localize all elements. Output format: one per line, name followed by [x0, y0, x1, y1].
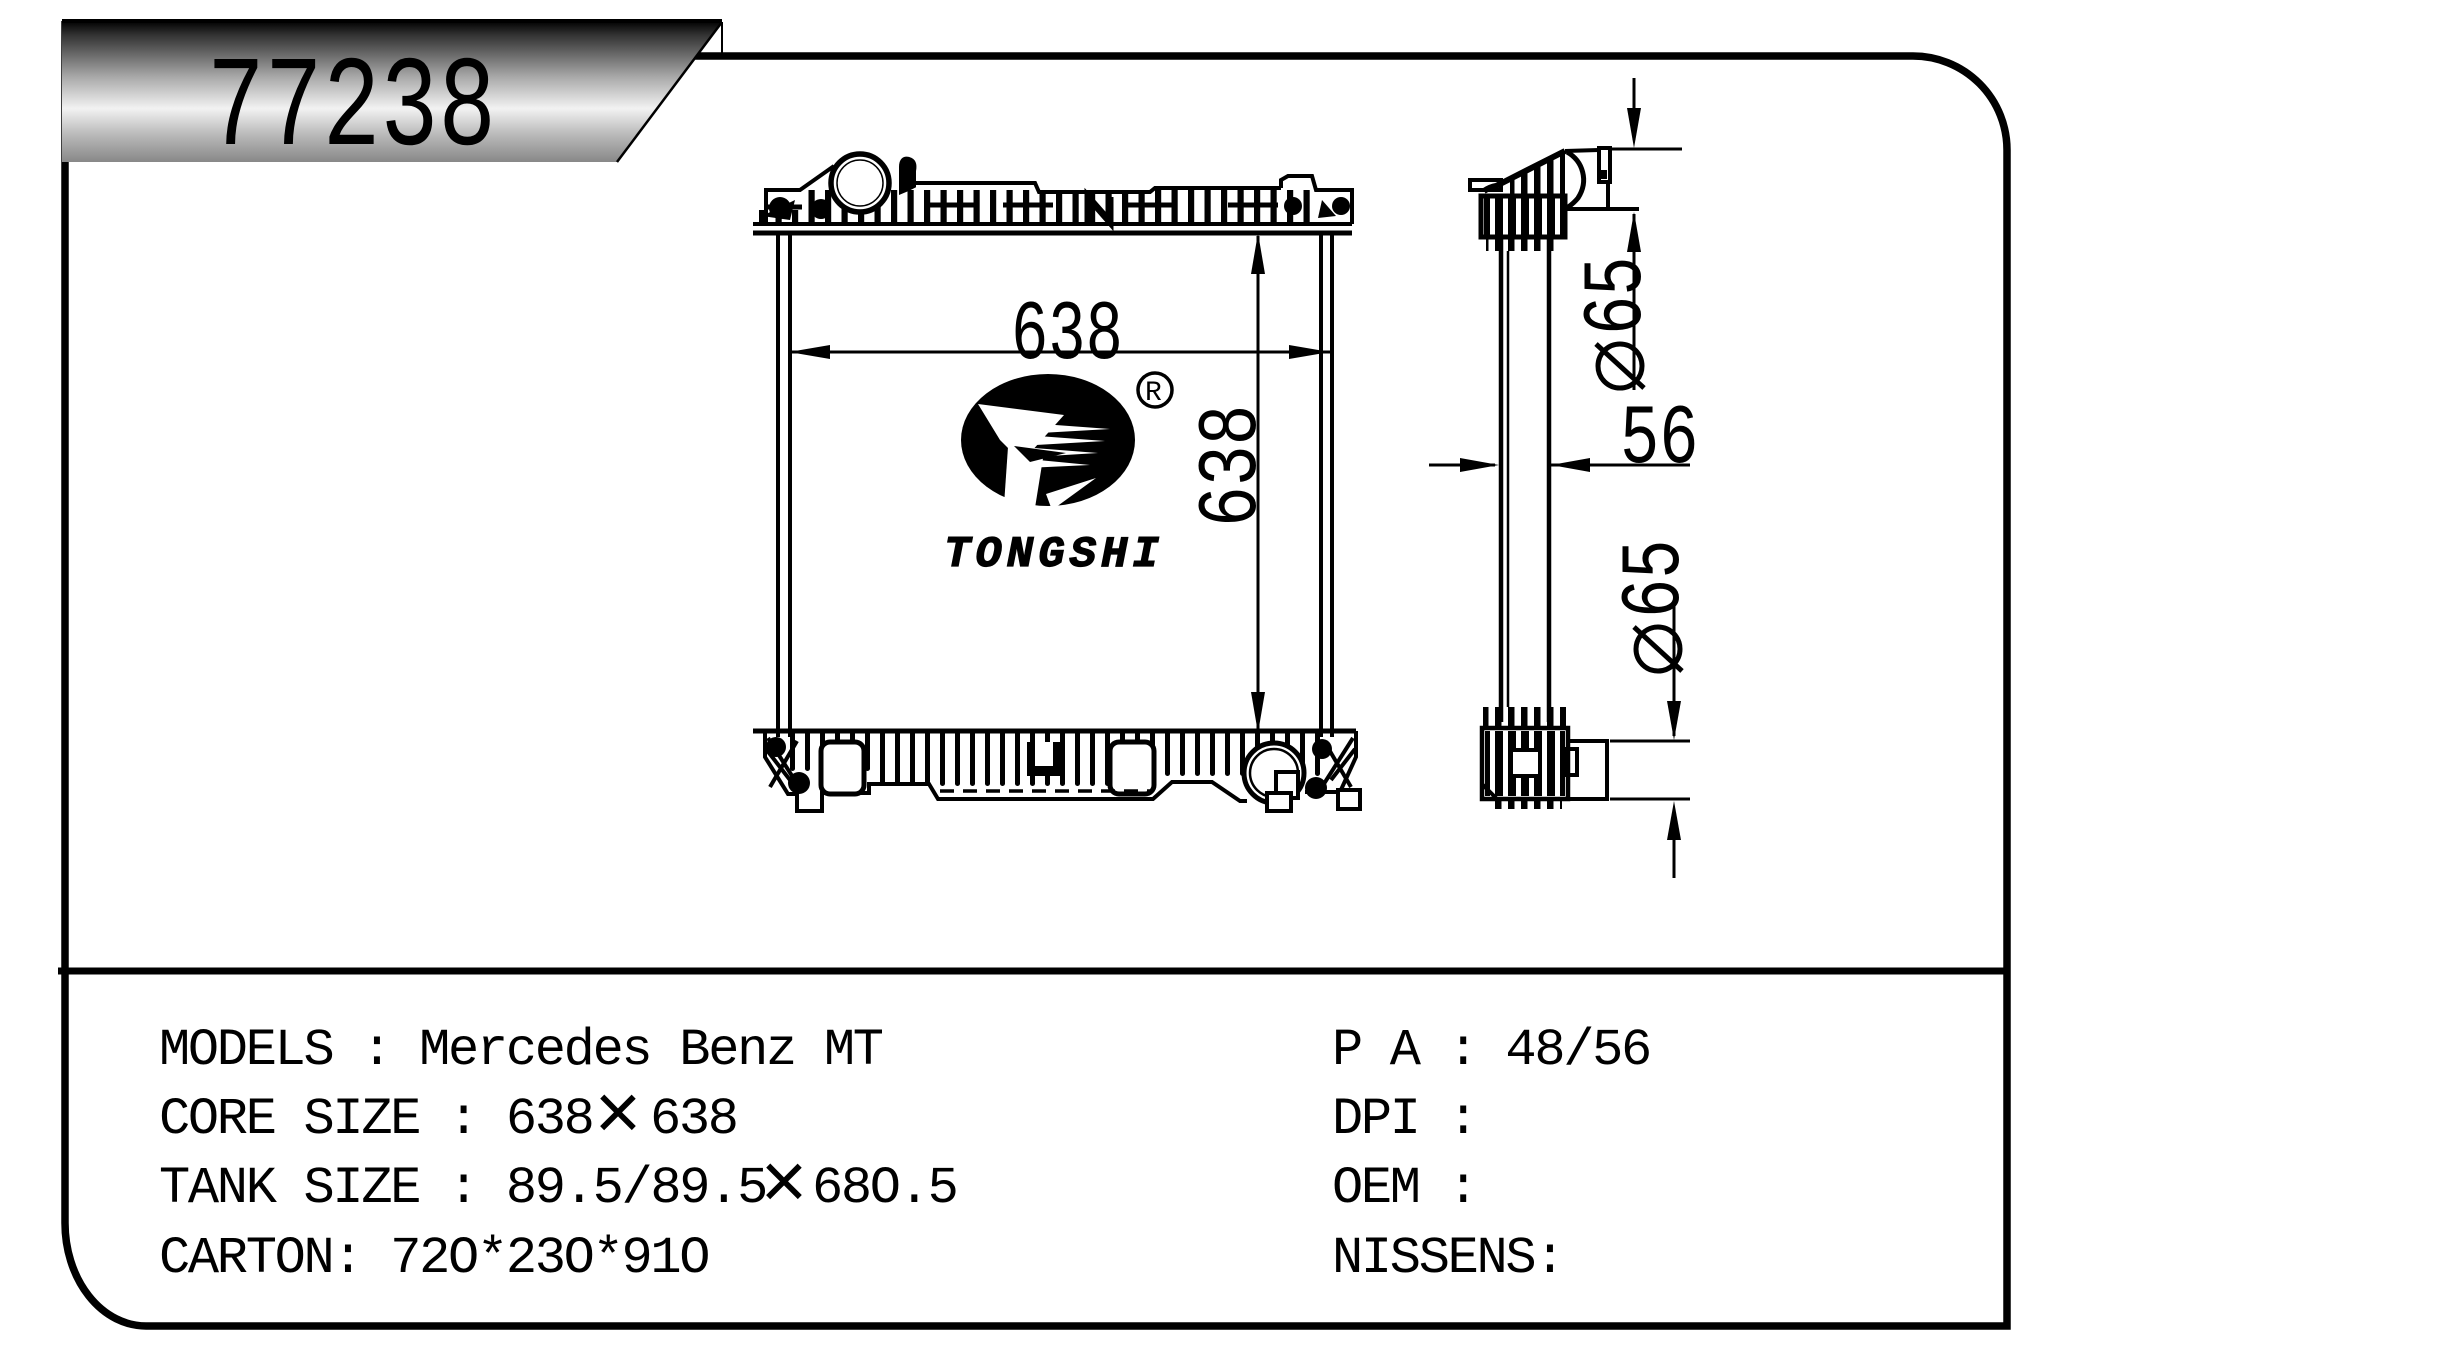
svg-text:638: 638	[1011, 289, 1123, 384]
svg-text:CARTON: 72O*23O*91O: CARTON: 72O*23O*91O	[159, 1229, 708, 1288]
svg-text:638: 638	[1185, 405, 1281, 527]
svg-text:×: ×	[760, 1142, 808, 1233]
svg-text:×: ×	[594, 1073, 642, 1164]
svg-text:R: R	[1145, 378, 1162, 409]
svg-text:CORE SIZE : 638: CORE SIZE : 638	[159, 1090, 593, 1149]
svg-text:DPI :: DPI :	[1332, 1090, 1477, 1149]
svg-text:638: 638	[650, 1090, 737, 1149]
svg-text:TONGSHI: TONGSHI	[944, 530, 1164, 580]
svg-text:56: 56	[1620, 392, 1699, 488]
svg-text:P A : 48/56: P A : 48/56	[1332, 1021, 1650, 1080]
svg-text:68O.5: 68O.5	[812, 1159, 957, 1218]
svg-text:65: 65	[1570, 256, 1666, 335]
svg-text:OEM :: OEM :	[1332, 1159, 1477, 1218]
svg-text:MODELS : Mercedes Benz MT: MODELS : Mercedes Benz MT	[159, 1021, 883, 1080]
svg-text:NISSENS:: NISSENS:	[1332, 1229, 1563, 1288]
svg-text:65: 65	[1608, 539, 1704, 618]
svg-text:77238: 77238	[207, 37, 496, 183]
svg-text:TANK SIZE : 89.5/89.5: TANK SIZE : 89.5/89.5	[159, 1159, 766, 1218]
